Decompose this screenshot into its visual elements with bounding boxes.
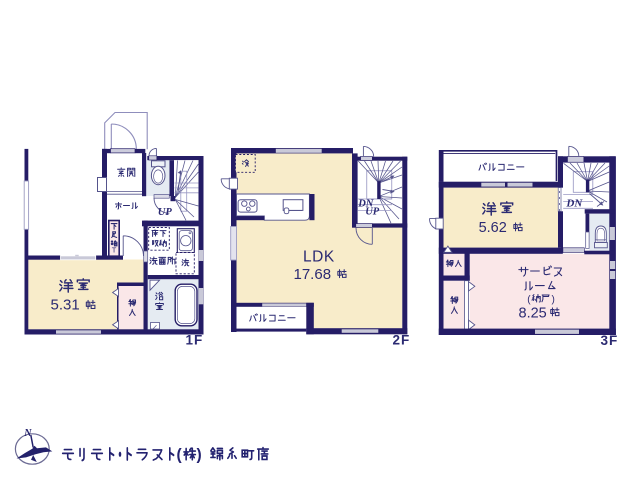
svg-text:1F: 1F [186, 333, 204, 348]
svg-text:T: T [112, 246, 117, 255]
svg-text:N: N [23, 428, 32, 439]
svg-text:): ) [552, 295, 555, 306]
svg-text:DN: DN [565, 198, 583, 210]
svg-text:17.68: 17.68 [294, 266, 332, 283]
svg-text:3F: 3F [601, 333, 619, 348]
svg-text:): ) [197, 447, 202, 464]
svg-text:5.62: 5.62 [479, 220, 507, 236]
svg-text:UP: UP [365, 207, 380, 218]
svg-text:UP: UP [158, 207, 173, 218]
svg-text:2F: 2F [393, 333, 411, 348]
svg-text:5.31: 5.31 [51, 297, 80, 314]
svg-text:8.25: 8.25 [519, 305, 547, 321]
svg-text:LDK: LDK [303, 248, 335, 265]
svg-text:(: ( [177, 447, 183, 464]
